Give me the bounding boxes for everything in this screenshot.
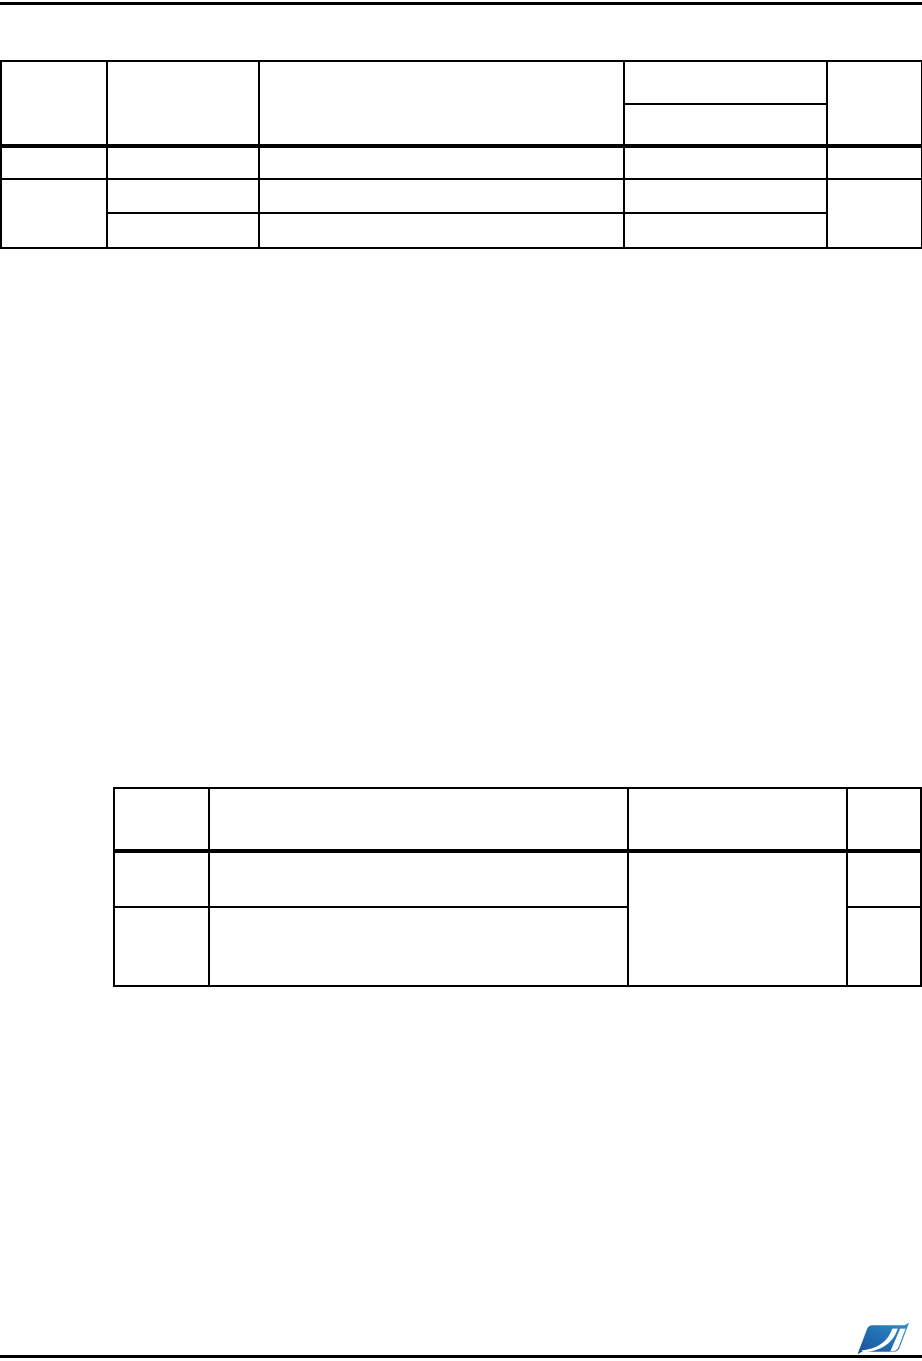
header-rule	[0, 2, 922, 5]
body-cell	[624, 146, 827, 179]
body-cell	[107, 179, 259, 213]
body-cell	[209, 907, 628, 986]
header-cell	[1, 61, 107, 146]
header-cell	[259, 61, 624, 146]
body-cell	[259, 146, 624, 179]
st-logo	[857, 1322, 910, 1355]
body-cell	[114, 851, 209, 907]
top-table-row-2	[1, 179, 922, 213]
body-cell	[624, 213, 827, 248]
body-cell	[847, 851, 921, 907]
body-cell-merged	[827, 179, 922, 248]
middle-table-header-row	[114, 788, 921, 851]
document-page	[0, 0, 922, 1361]
header-subcell-lower	[624, 104, 827, 146]
body-cell	[847, 907, 921, 986]
header-cell	[847, 788, 921, 851]
body-cell	[1, 146, 107, 179]
top-table	[0, 60, 922, 249]
header-cell	[628, 788, 847, 851]
body-cell	[209, 851, 628, 907]
body-cell	[114, 907, 209, 986]
body-cell	[107, 146, 259, 179]
top-table-row-3	[1, 213, 922, 248]
top-table-header-row-1	[1, 61, 922, 104]
body-cell	[259, 179, 624, 213]
footer-rule	[0, 1355, 922, 1358]
top-table-row-1	[1, 146, 922, 179]
middle-table	[113, 787, 922, 987]
body-cell-merged	[1, 179, 107, 248]
header-cell	[827, 61, 922, 146]
header-cell	[107, 61, 259, 146]
header-cell	[114, 788, 209, 851]
body-cell	[107, 213, 259, 248]
body-cell	[827, 146, 922, 179]
body-cell	[259, 213, 624, 248]
middle-table-row-1	[114, 851, 921, 907]
st-logo-graphic	[857, 1322, 910, 1355]
header-subcell-upper	[624, 61, 827, 104]
body-cell-merged	[628, 851, 847, 986]
header-cell	[209, 788, 628, 851]
body-cell	[624, 179, 827, 213]
